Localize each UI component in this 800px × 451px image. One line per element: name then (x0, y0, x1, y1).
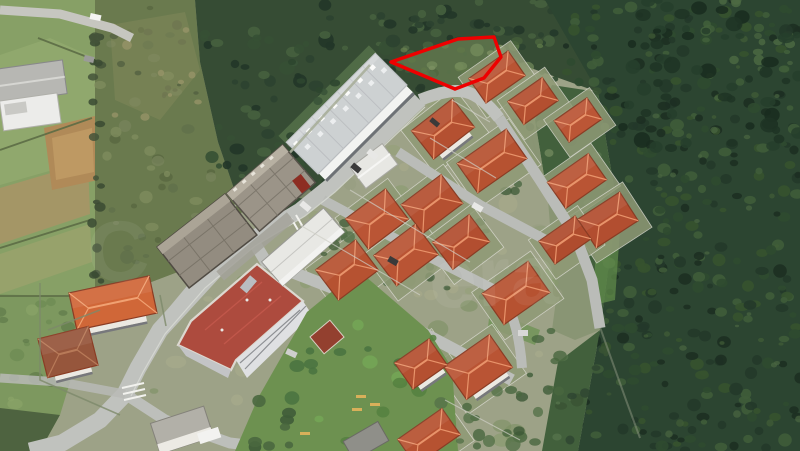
svg-text:era: era (427, 226, 561, 326)
svg-text:C: C (85, 203, 150, 301)
